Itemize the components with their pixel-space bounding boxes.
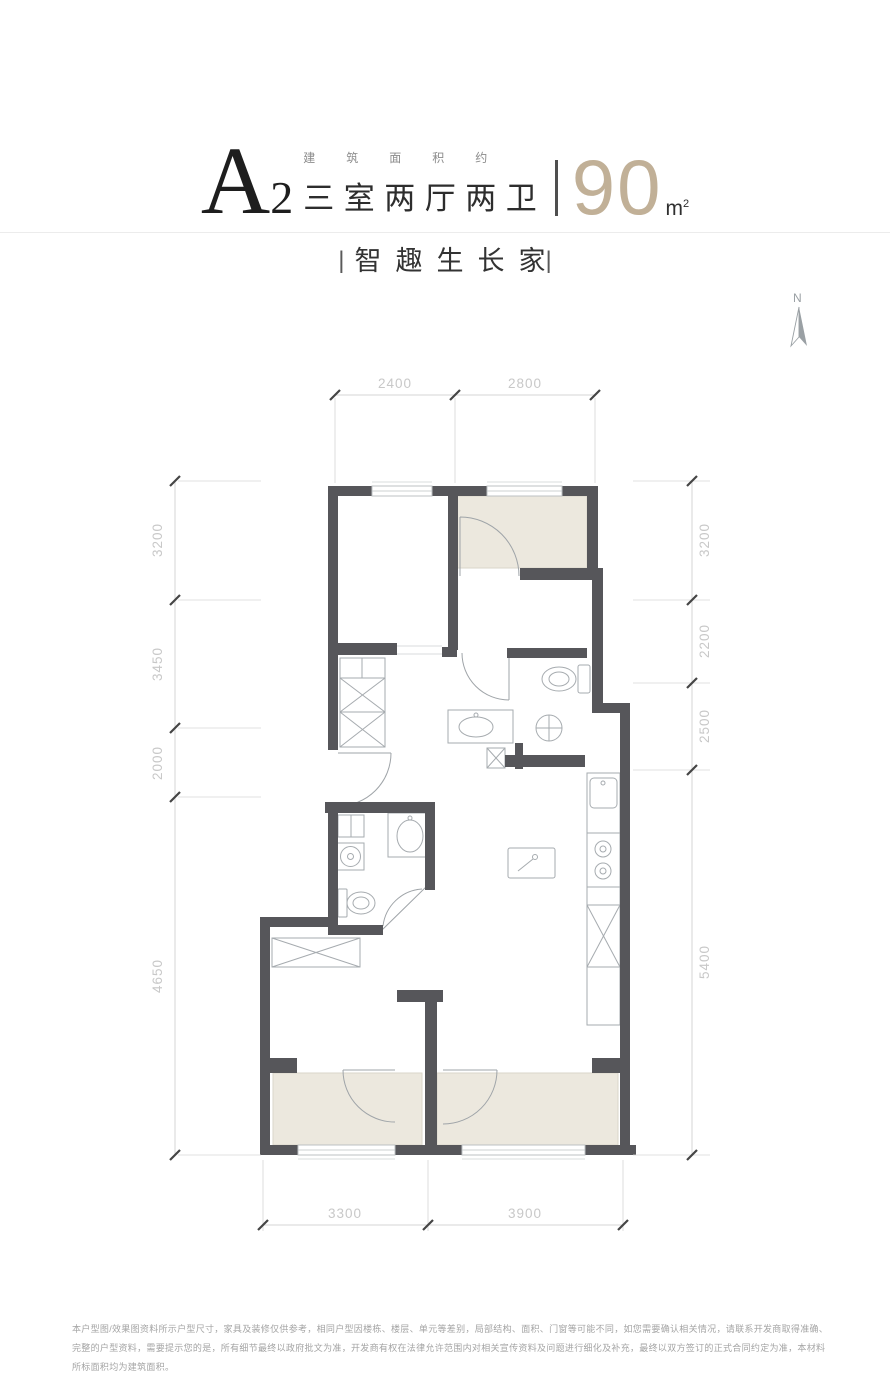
dimension-label: 3900: [508, 1206, 542, 1221]
header-rule: [0, 232, 890, 233]
header-divider: [555, 160, 558, 216]
slogan-bar-left: |: [338, 247, 344, 275]
dimension-bottom: 3300 3900: [258, 1160, 628, 1231]
compass: N: [782, 290, 818, 359]
round-sink-icon: [536, 715, 562, 741]
dimension-label: 3200: [150, 523, 165, 557]
bedroom-top-right-floor: [455, 496, 587, 568]
dimension-right: 3200 2200 2500 5400: [633, 476, 712, 1160]
stove-icon: [587, 833, 620, 887]
dimension-label: 2200: [697, 624, 712, 658]
unit-code-sub: 2: [270, 172, 293, 223]
dimension-label: 3300: [328, 1206, 362, 1221]
floor-plan: 2400 2800 3200 3450 2000 4650 3200 2200: [125, 365, 765, 1270]
washbasin-icon: [448, 710, 513, 743]
kitchen-island-icon: [508, 848, 555, 878]
slogan: |智趣生长家|: [0, 239, 890, 278]
dimension-label: 5400: [697, 945, 712, 979]
area-unit: m2: [665, 198, 689, 220]
fridge-icon: [587, 905, 620, 967]
area-label: 建筑面积约: [303, 149, 568, 166]
unit-code-main: A: [201, 127, 270, 234]
walls: [260, 486, 636, 1155]
door-arc-master-bath: [381, 885, 428, 931]
slogan-text: 智趣生长家: [355, 246, 560, 276]
window-icon: [487, 486, 562, 496]
door-arc-entry: [338, 753, 391, 806]
kitchen-counter: [587, 773, 620, 1025]
dimension-label: 3200: [697, 523, 712, 557]
bedroom-bottom-left-floor: [273, 1073, 422, 1145]
bath-toilet-icon: [338, 889, 375, 917]
wardrobe-icon: [272, 938, 360, 967]
layout-title: 三室两厅两卫: [303, 173, 546, 218]
area-figure: 90 m2: [572, 156, 689, 220]
disclaimer-text: 本户型图/效果图资料所示户型尺寸，家具及装修仅供参考，相同户型因楼栋、楼层、单元…: [72, 1320, 834, 1377]
washing-machine-icon: [337, 843, 364, 870]
window-icon: [462, 1145, 585, 1155]
window-icon: [372, 486, 432, 496]
north-arrow-icon: [791, 307, 807, 346]
dimension-left: 3200 3450 2000 4650: [150, 476, 261, 1160]
dimension-label: 2800: [508, 376, 542, 391]
door-arc-guest-wc: [462, 653, 509, 700]
dimension-label: 2400: [378, 376, 412, 391]
entry-cabinet-icon: [340, 658, 385, 747]
title-block: 建筑面积约 三室两厅两卫: [303, 149, 537, 218]
dimension-top: 2400 2800: [330, 376, 600, 483]
column-icon: [487, 748, 505, 768]
dimension-label: 3450: [150, 647, 165, 681]
dimension-label: 4650: [150, 959, 165, 993]
slogan-bar-right: |: [546, 247, 552, 275]
unit-code: A2: [201, 143, 293, 220]
dimension-label: 2500: [697, 709, 712, 743]
bedroom-bottom-right-floor: [437, 1073, 618, 1145]
compass-north-label: N: [793, 291, 802, 305]
toilet-icon: [542, 665, 590, 693]
window-icon: [298, 1145, 395, 1155]
furniture: [272, 658, 620, 1025]
header: A2 建筑面积约 三室两厅两卫 90 m2: [0, 140, 890, 220]
bath-cabinet-icon: [338, 815, 364, 837]
room-fills: [273, 496, 618, 1145]
dimension-label: 2000: [150, 746, 165, 780]
kitchen-sink-icon: [590, 778, 617, 808]
area-value: 90: [572, 156, 663, 220]
opening-top-left-room: [397, 646, 442, 654]
